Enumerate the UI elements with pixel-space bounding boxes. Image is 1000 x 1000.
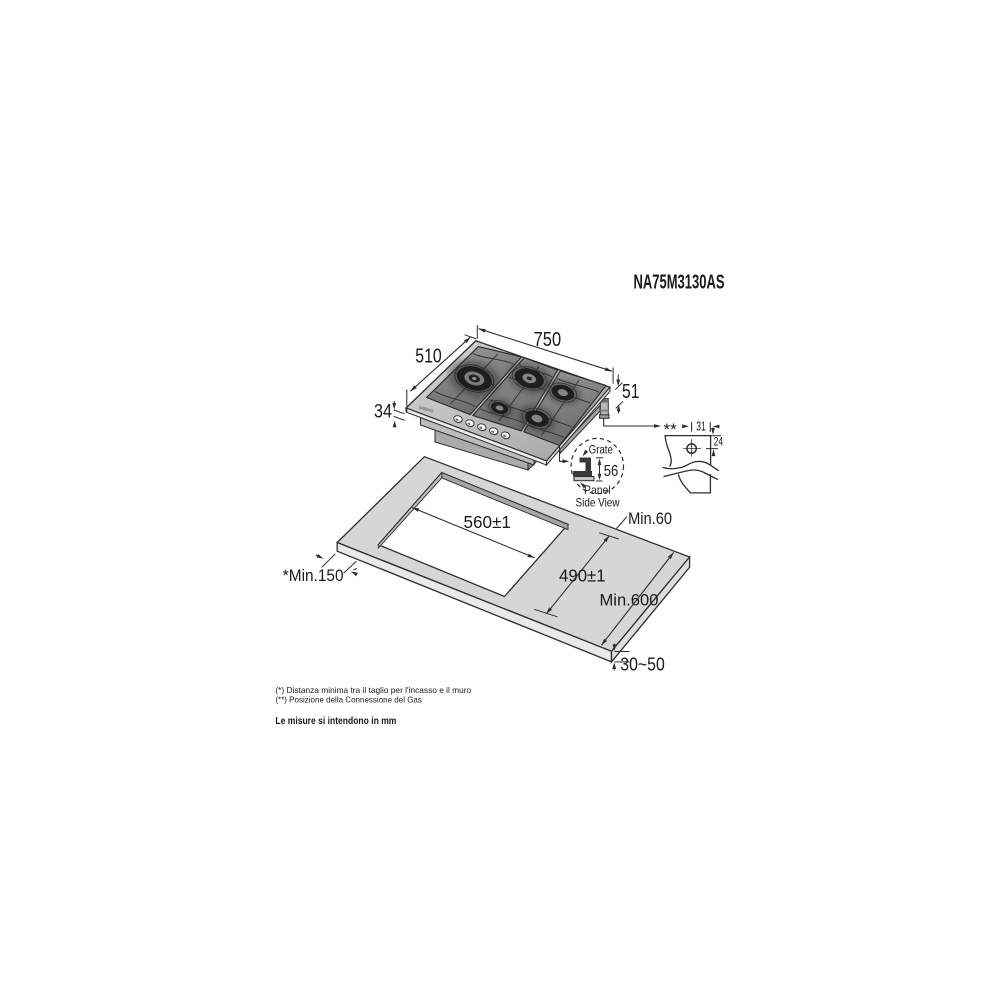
svg-text:51: 51: [622, 381, 639, 403]
svg-text:750: 750: [534, 329, 562, 351]
svg-text:30~50: 30~50: [620, 655, 665, 675]
svg-text:(**) Posizione della Connessio: (**) Posizione della Connessione del Gas: [275, 695, 422, 705]
svg-text:(*) Distanza minima tra il tag: (*) Distanza minima tra il taglio per l'…: [275, 685, 471, 695]
svg-text:Side View: Side View: [576, 496, 620, 510]
svg-text:Min.60: Min.60: [628, 510, 672, 528]
svg-text:490±1: 490±1: [559, 566, 606, 586]
svg-text:510: 510: [415, 346, 442, 368]
svg-text:31: 31: [696, 420, 706, 434]
svg-text:24: 24: [714, 437, 724, 449]
svg-text:34: 34: [374, 402, 392, 423]
svg-text:NA75M3130AS: NA75M3130AS: [634, 271, 725, 294]
svg-text:Grate: Grate: [589, 445, 613, 457]
svg-text:*Min.150: *Min.150: [283, 567, 344, 585]
svg-text:56: 56: [604, 463, 619, 480]
svg-text:560±1: 560±1: [463, 512, 511, 532]
svg-text:Min.600: Min.600: [600, 592, 659, 610]
svg-text:Le misure si intendono in mm: Le misure si intendono in mm: [275, 716, 396, 727]
